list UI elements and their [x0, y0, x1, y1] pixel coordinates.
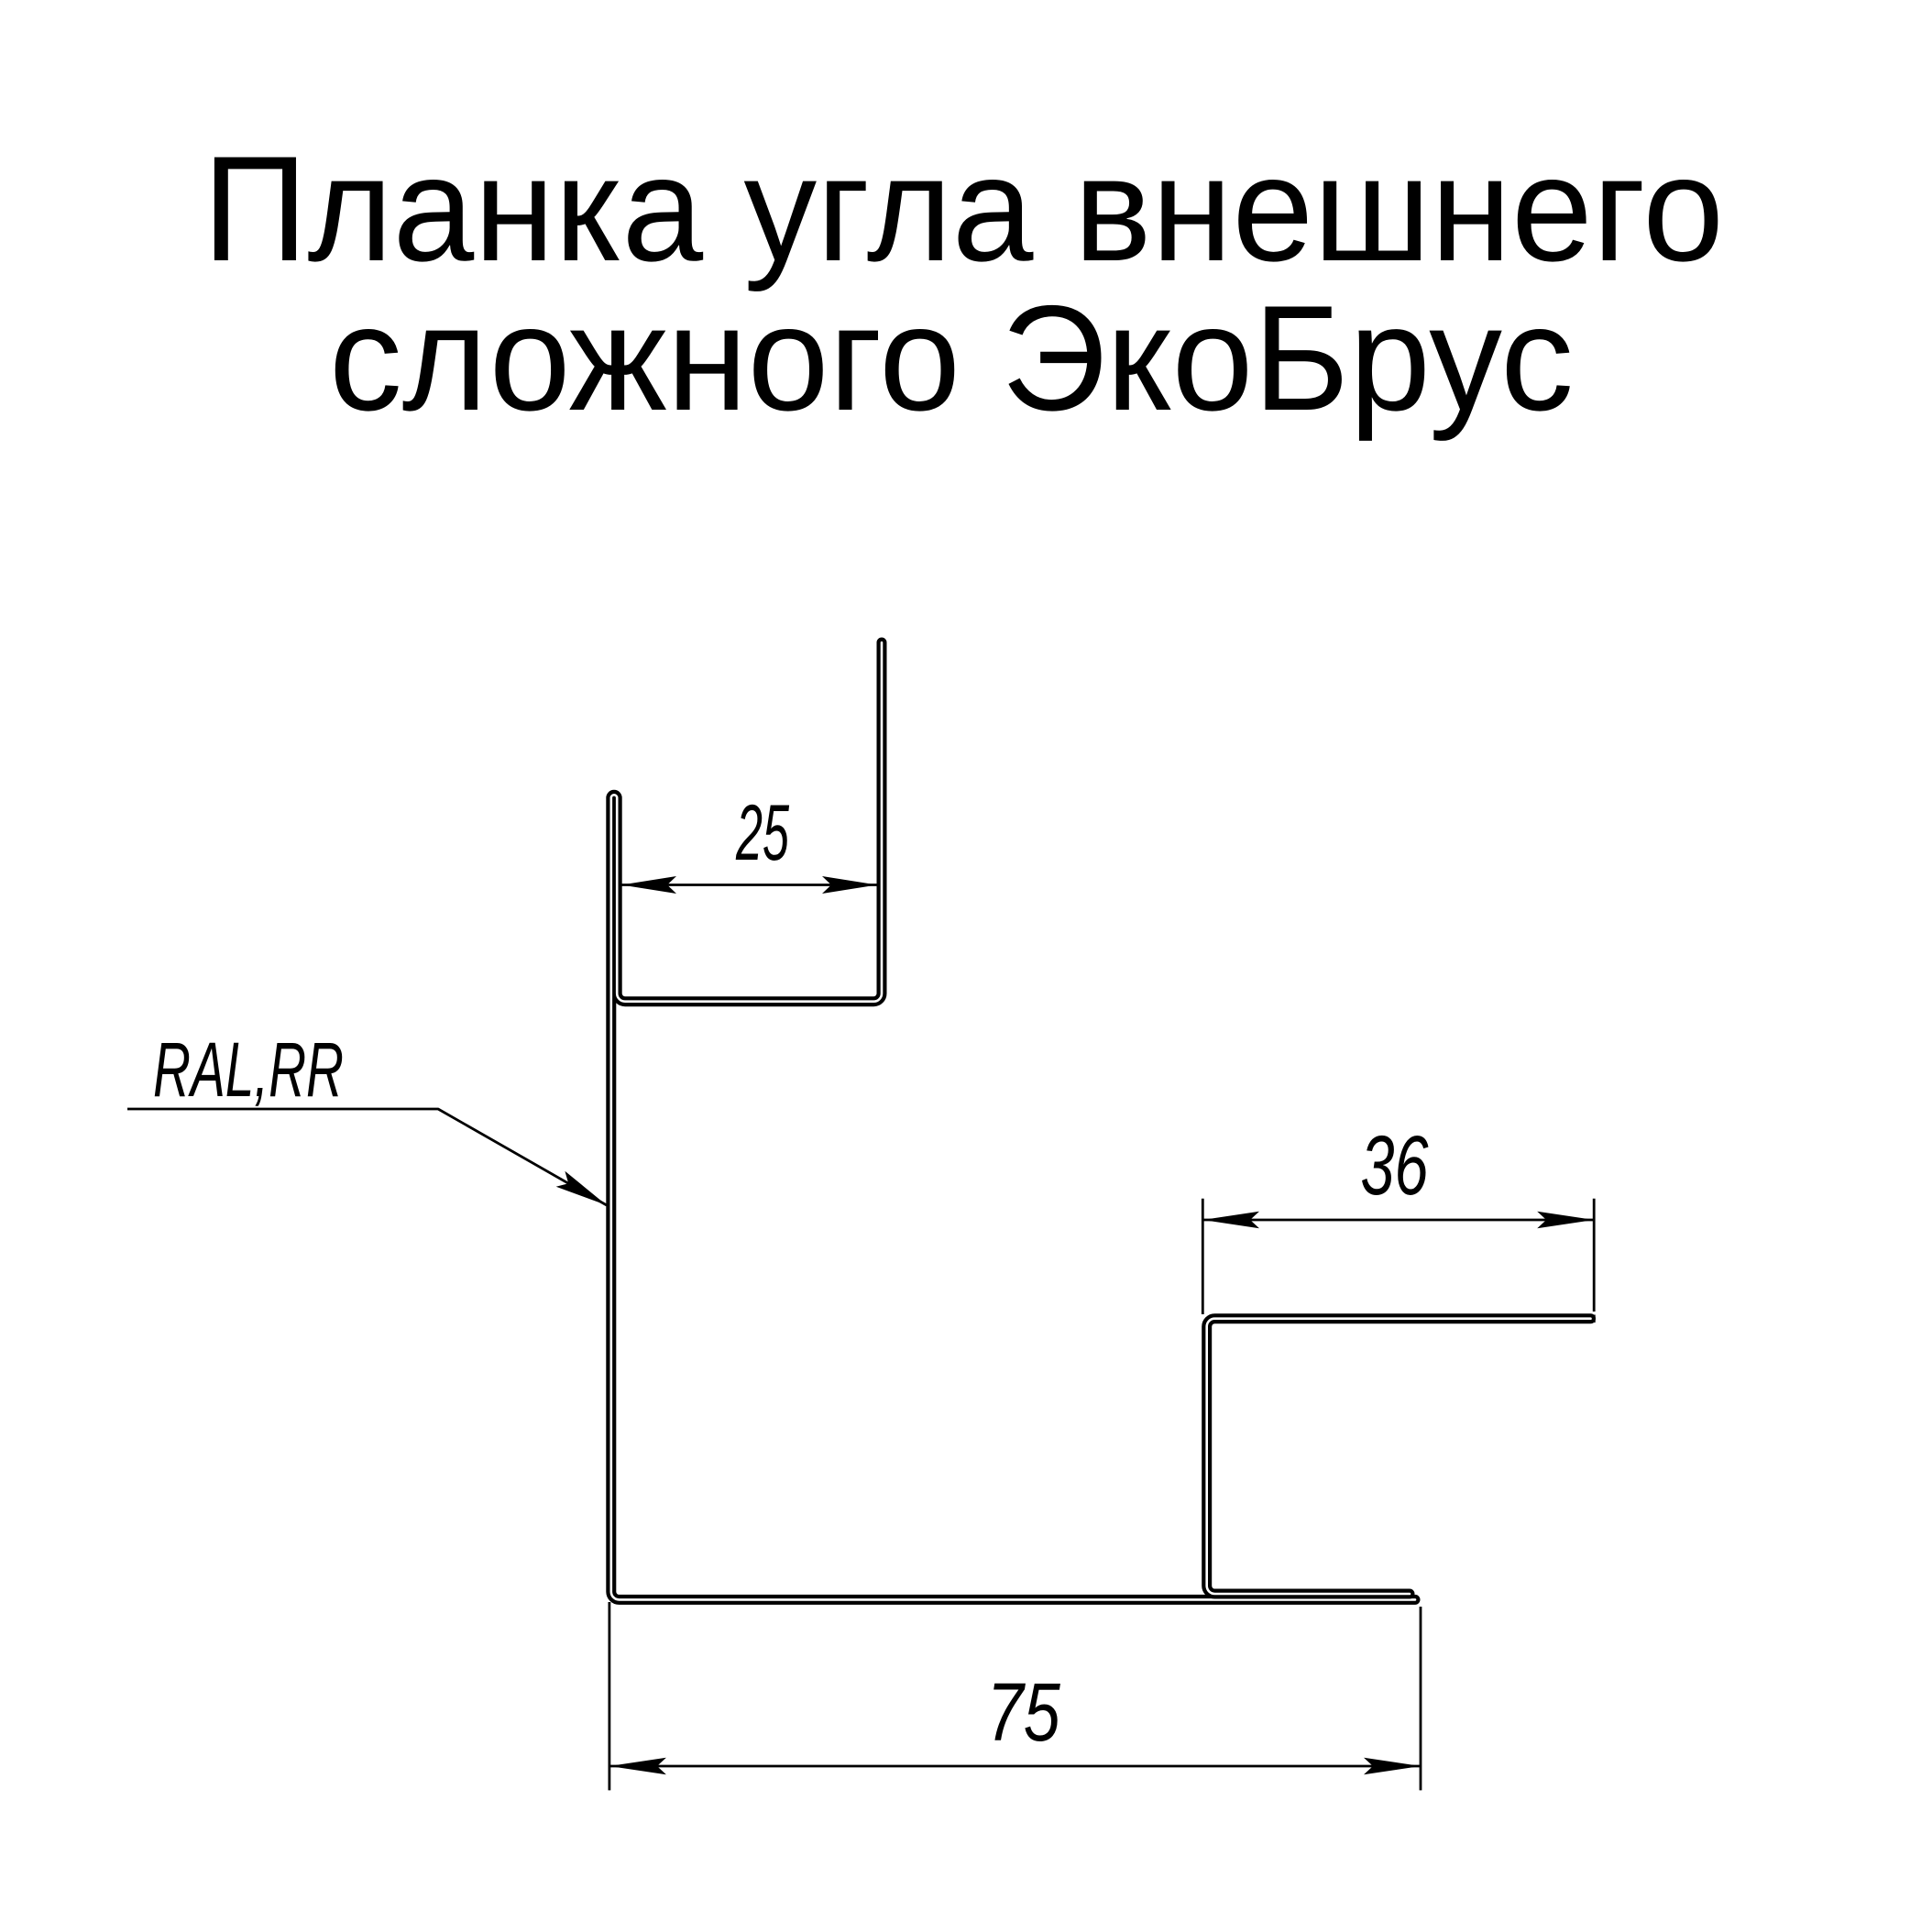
- svg-text:36: 36: [1361, 1119, 1430, 1213]
- svg-text:25: 25: [735, 789, 789, 877]
- svg-text:75: 75: [987, 1667, 1061, 1759]
- svg-text:RAL,RR: RAL,RR: [153, 1026, 344, 1113]
- svg-text:сложного ЭкоБрус: сложного ЭкоБрус: [329, 274, 1574, 442]
- svg-text:Планка угла внешнего: Планка угла внешнего: [203, 125, 1724, 292]
